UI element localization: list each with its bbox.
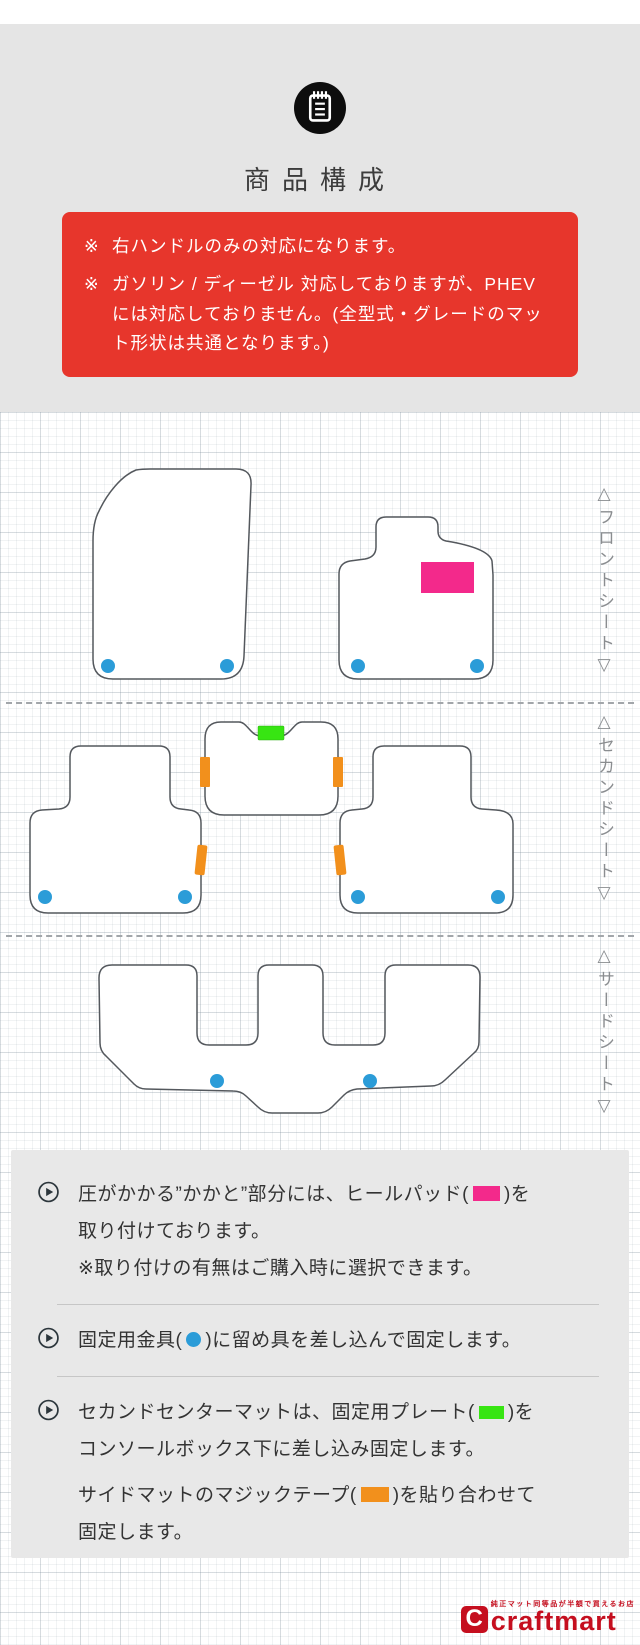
legend-line: 固定します。 xyxy=(78,1514,536,1551)
fixing-hardware-marker xyxy=(220,659,234,673)
notice-text: 右ハンドルのみの対応になります。 xyxy=(112,232,406,261)
legend-item-plate-tape: セカンドセンターマットは、固定用プレート()を コンソールボックス下に差し込み固… xyxy=(35,1394,611,1551)
memo-icon xyxy=(294,82,346,134)
legend-box: 圧がかかる”かかと”部分には、ヒールパッド()を 取り付けております。 ※取り付… xyxy=(11,1150,629,1558)
fixing-plate-swatch xyxy=(479,1406,504,1419)
craftmart-logo[interactable]: C 純正マット同等品が半額で買えるお店 craftmart xyxy=(461,1601,635,1633)
page-title: 商品構成 xyxy=(0,160,640,197)
legend-line: サイドマットのマジックテープ()を貼り合わせて xyxy=(78,1477,536,1514)
logo-wordmark: craftmart xyxy=(491,1609,617,1633)
legend-item-fixing-hardware: 固定用金具()に留め具を差し込んで固定します。 xyxy=(35,1322,611,1359)
note-marker: ※ xyxy=(84,232,104,261)
legend-line: 固定用金具()に留め具を差し込んで固定します。 xyxy=(78,1322,521,1359)
second-seat-diagram xyxy=(0,704,640,937)
legend-line: 取り付けております。 xyxy=(78,1213,530,1250)
magic-tape-swatch xyxy=(361,1487,389,1502)
fixing-plate-marker xyxy=(258,726,284,740)
play-bullet-icon xyxy=(35,1394,62,1421)
fixing-hardware-marker xyxy=(101,659,115,673)
play-bullet-icon xyxy=(35,1176,62,1203)
notice-item: ※ 右ハンドルのみの対応になります。 xyxy=(84,232,558,261)
third-seat-diagram xyxy=(0,937,640,1150)
front-driver-mat xyxy=(93,469,251,679)
legend-line: セカンドセンターマットは、固定用プレート()を xyxy=(78,1394,536,1431)
header-section: 商品構成 ※ 右ハンドルのみの対応になります。 ※ ガソリン / ディーゼル 対… xyxy=(0,24,640,412)
fixing-hardware-swatch xyxy=(186,1332,201,1347)
fixing-hardware-marker xyxy=(210,1074,224,1088)
play-bullet-icon xyxy=(35,1322,62,1349)
front-seat-label: △フロントシート▽ xyxy=(589,484,619,679)
legend-line: 圧がかかる”かかと”部分には、ヒールパッド()を xyxy=(78,1176,530,1213)
craftmart-logo-icon: C xyxy=(461,1606,488,1633)
notice-text: ガソリン / ディーゼル 対応しておりますが、PHEV には対応しておりません。… xyxy=(112,270,558,358)
second-right-mat xyxy=(340,746,513,913)
heel-pad-swatch xyxy=(473,1186,500,1201)
notice-box: ※ 右ハンドルのみの対応になります。 ※ ガソリン / ディーゼル 対応しており… xyxy=(62,212,578,377)
notice-item: ※ ガソリン / ディーゼル 対応しておりますが、PHEV には対応しておりませ… xyxy=(84,270,558,358)
legend-note: ※取り付けの有無はご購入時に選択できます。 xyxy=(78,1250,530,1287)
fixing-hardware-marker xyxy=(38,890,52,904)
third-row-mat xyxy=(99,965,480,1113)
legend-divider xyxy=(57,1304,599,1305)
legend-line: コンソールボックス下に差し込み固定します。 xyxy=(78,1431,536,1468)
fixing-hardware-marker xyxy=(470,659,484,673)
front-passenger-mat xyxy=(339,517,493,679)
fixing-hardware-marker xyxy=(178,890,192,904)
heel-pad-marker xyxy=(421,562,474,593)
fixing-hardware-marker xyxy=(363,1074,377,1088)
fixing-hardware-marker xyxy=(351,659,365,673)
second-left-mat xyxy=(30,746,201,913)
fixing-hardware-marker xyxy=(351,890,365,904)
legend-item-heel-pad: 圧がかかる”かかと”部分には、ヒールパッド()を 取り付けております。 ※取り付… xyxy=(35,1176,611,1287)
fixing-hardware-marker xyxy=(491,890,505,904)
magic-tape-marker xyxy=(200,757,210,787)
magic-tape-marker xyxy=(333,757,343,787)
second-seat-label: △セカンドシート▽ xyxy=(589,712,619,907)
third-seat-label: △サードシート▽ xyxy=(589,946,619,1120)
front-seat-diagram xyxy=(0,412,640,704)
note-marker: ※ xyxy=(84,270,104,358)
product-composition-page: 商品構成 ※ 右ハンドルのみの対応になります。 ※ ガソリン / ディーゼル 対… xyxy=(0,0,640,1645)
legend-divider xyxy=(57,1376,599,1377)
